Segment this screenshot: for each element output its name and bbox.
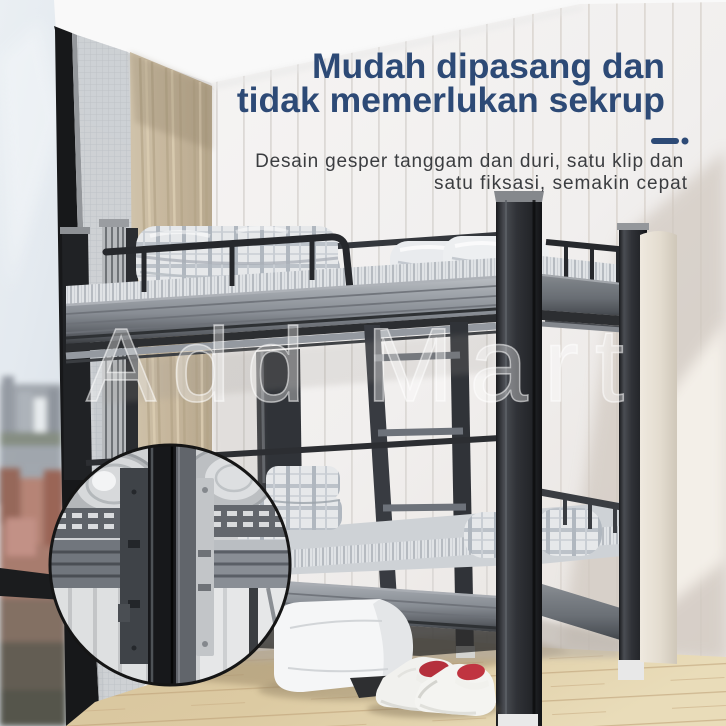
svg-text:Add Mart: Add Mart [86, 307, 640, 424]
svg-text:tidak memerlukan sekrup: tidak memerlukan sekrup [237, 80, 665, 120]
svg-text:satu fiksasi, semakin cepat: satu fiksasi, semakin cepat [434, 173, 688, 194]
svg-text:Desain gesper tanggam dan duri: Desain gesper tanggam dan duri, satu kli… [255, 151, 684, 172]
